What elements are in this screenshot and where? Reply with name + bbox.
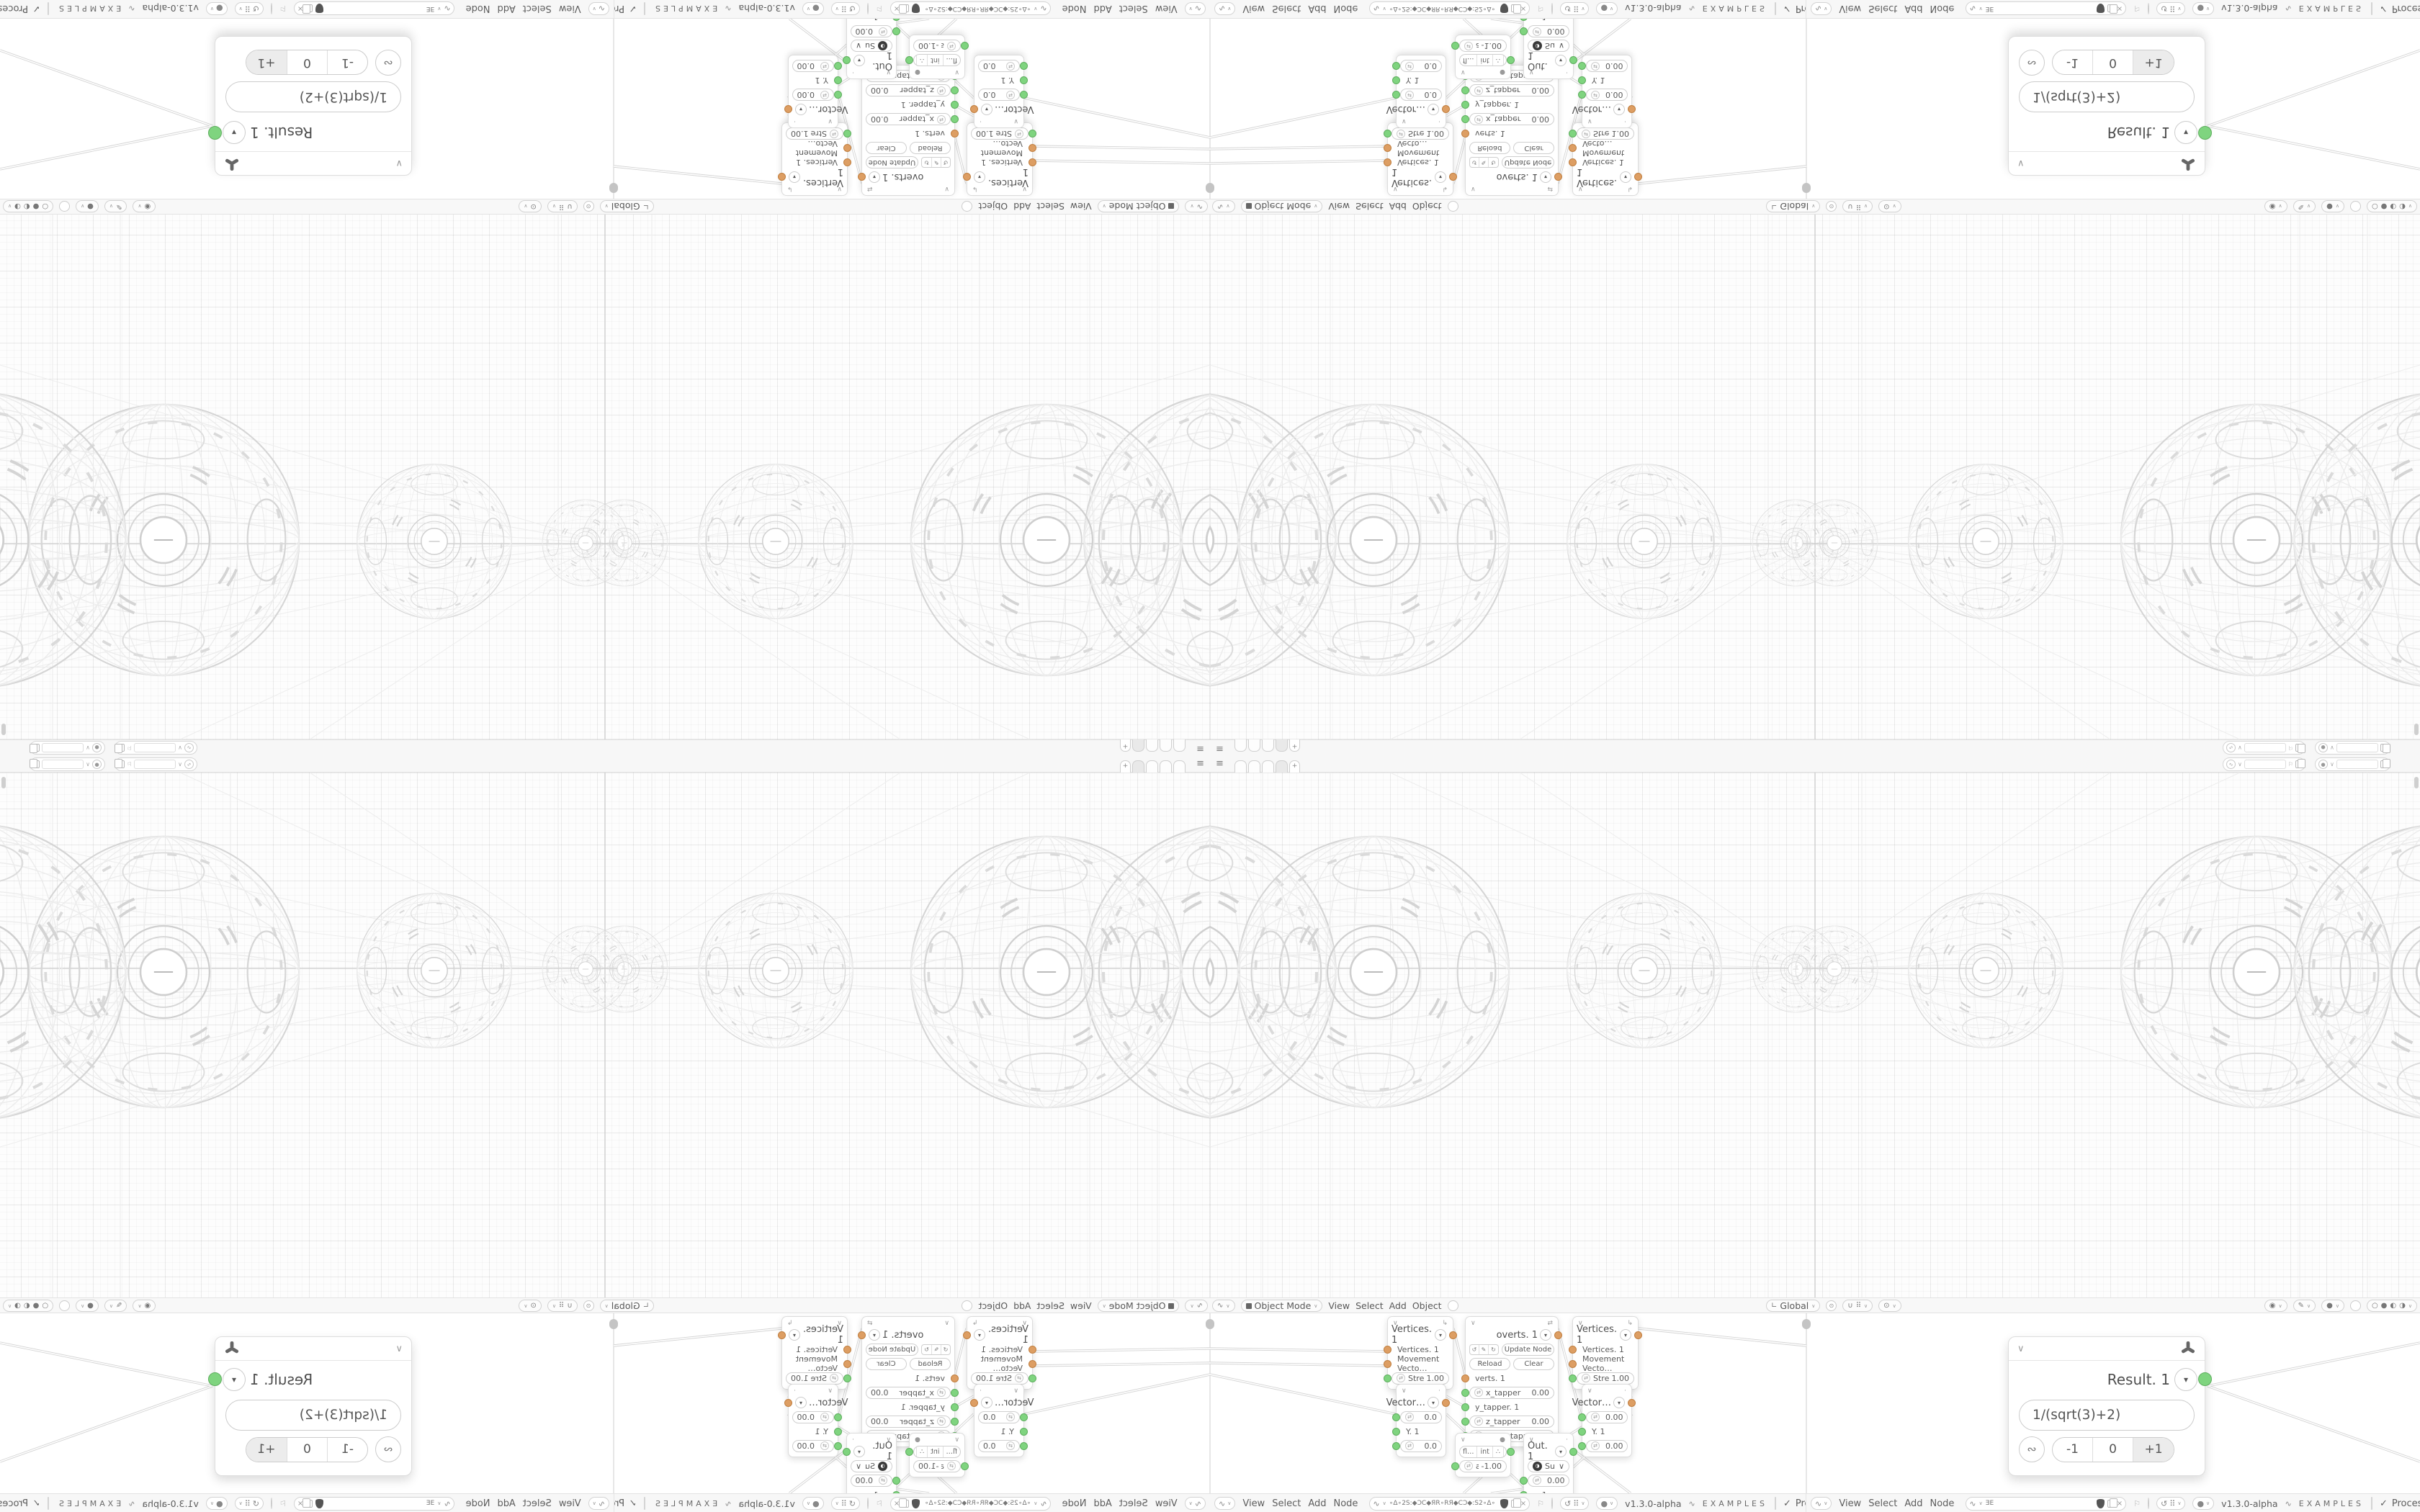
stepper-minus-button[interactable]: -1 <box>2053 51 2093 75</box>
tab-active[interactable] <box>1276 760 1288 773</box>
menu-add[interactable]: Add <box>1389 1300 1407 1311</box>
value-field[interactable]: ⇄a-1.00 <box>913 1460 961 1472</box>
node-socket[interactable] <box>834 1442 842 1450</box>
menu-object[interactable]: Object <box>978 1300 1008 1311</box>
value-field[interactable]: ⇄0.00 <box>792 60 834 73</box>
tab-active[interactable] <box>1276 739 1288 752</box>
tab[interactable] <box>1173 760 1186 773</box>
menu-add[interactable]: Add <box>1308 1498 1326 1509</box>
node-math[interactable]: ∨●fl…int∴▾⇄a-1.00 <box>909 1433 965 1477</box>
quick-field[interactable] <box>2336 760 2378 769</box>
menu-view[interactable]: View <box>1328 1300 1350 1311</box>
search-box[interactable]: ∿∨ ∘Δ∘2S:◆ƆC◆ЯR∘RЯ◆CƆ◆:S2∘Δ∘ × <box>890 1497 1051 1511</box>
node-socket[interactable] <box>843 1448 851 1456</box>
value-field[interactable]: ⇄0.0 <box>978 1440 1020 1452</box>
menu-add[interactable]: Add <box>1094 4 1112 14</box>
expression-field[interactable]: 1/(sqrt(3)+2) <box>225 81 401 112</box>
node-update-overts[interactable]: ∨⇄overts. 1▾↺✎↻Update NodeReloadClearver… <box>861 65 955 196</box>
examples-button[interactable]: EXAMPLES <box>1703 4 1767 14</box>
collapse-chevron-icon[interactable]: ∨ <box>954 69 959 76</box>
value-field[interactable]: ⇄0.00 <box>1586 60 1628 73</box>
copy-icon[interactable] <box>902 5 909 13</box>
reload-button[interactable]: Reload <box>1469 1358 1510 1370</box>
3d-viewport[interactable] <box>0 773 1210 1297</box>
node-socket[interactable] <box>1028 145 1036 153</box>
particles-icon[interactable]: ∴ <box>644 1498 645 1509</box>
node-socket[interactable] <box>970 106 978 114</box>
node-socket[interactable] <box>892 19 900 22</box>
node-result[interactable]: ∨ Result. 1 ▾ 1/(sqrt(3)+2) ∾ -1 0 <box>215 1336 412 1476</box>
wireframe-sphere[interactable] <box>1567 464 1722 619</box>
examples-button[interactable]: EXAMPLES <box>653 1499 717 1508</box>
collapse-chevron-icon[interactable]: ∨ <box>1587 1387 1592 1395</box>
editor-type-button[interactable]: ∿∨ <box>1214 2 1235 15</box>
node-socket[interactable] <box>963 1331 971 1339</box>
node-socket[interactable] <box>1569 57 1577 65</box>
node-math[interactable]: ∨●fl…int∴▾⇄a-1.00 <box>1455 1433 1511 1477</box>
node-math[interactable]: ∨●fl…int∴▾⇄a-1.00 <box>1455 35 1511 79</box>
value-field[interactable]: ⇄0.00 <box>1528 1475 1569 1487</box>
menu-object[interactable]: Object <box>1412 201 1442 212</box>
node-socket[interactable] <box>1578 63 1586 71</box>
quick-field[interactable] <box>134 760 176 769</box>
tab[interactable] <box>1146 760 1158 773</box>
node-socket[interactable] <box>858 174 866 181</box>
editor-type-button[interactable]: ∿∨ <box>588 2 609 15</box>
stepper-plus-button[interactable]: +1 <box>2133 51 2174 75</box>
node-socket[interactable] <box>843 145 851 153</box>
snap-toggle[interactable]: ∪⠿∨ <box>1842 1300 1873 1312</box>
node-socket[interactable] <box>1554 174 1562 181</box>
refresh-grid-button[interactable]: ↺⠿∨ <box>1560 2 1589 15</box>
tools-pair[interactable]: ∴>_ <box>2371 2 2372 15</box>
reload-button[interactable]: Reload <box>1469 143 1510 155</box>
value-field[interactable]: ⇄Stren1.00 <box>1391 1372 1449 1385</box>
search-box[interactable]: ∿∨ ∘Δ∘2S:◆ƆC◆ЯR∘RЯ◆CƆ◆:S2∘Δ∘ × <box>890 2 1051 16</box>
wireframe-shading-icon[interactable]: ○ <box>42 1302 48 1310</box>
refresh-grid-button[interactable]: ↺⠿∨ <box>831 1497 860 1510</box>
clear-button[interactable]: Clear <box>1513 143 1554 155</box>
search-input[interactable]: ∘Δ∘2S:◆ƆC◆ЯR∘RЯ◆CƆ◆:S2∘Δ∘ <box>1389 5 1497 12</box>
render-preview-button[interactable] <box>59 1300 70 1311</box>
overlays-dropdown[interactable]: ✎∨ <box>2293 200 2316 212</box>
node-socket[interactable] <box>951 87 959 95</box>
node-socket[interactable] <box>892 28 900 36</box>
quick-access-control[interactable]: ● ∨ <box>30 757 105 771</box>
copy-icon[interactable] <box>2295 744 2302 752</box>
copy-icon[interactable] <box>1511 1500 1518 1508</box>
shield-icon[interactable] <box>912 1499 920 1508</box>
menu-view[interactable]: View <box>559 1498 581 1509</box>
value-dropdown[interactable]: ▾ <box>789 1329 800 1341</box>
shield-icon[interactable] <box>1500 4 1508 14</box>
node-socket[interactable] <box>1569 1360 1577 1368</box>
orientation-dropdown[interactable]: ∟Global∨ <box>1766 1300 1820 1312</box>
menu-add[interactable]: Add <box>1013 201 1031 212</box>
solid-shading-icon[interactable]: ● <box>33 1302 40 1310</box>
node-socket[interactable] <box>1020 91 1028 99</box>
wireframe-sphere[interactable] <box>1791 500 1878 586</box>
menu-add[interactable]: Add <box>1094 1498 1112 1509</box>
value-field[interactable]: ⇄0.0 <box>1400 1440 1442 1452</box>
menu-add[interactable]: Add <box>498 1498 516 1509</box>
mini-buttons[interactable]: ↺✎↻ <box>921 158 951 168</box>
viewport-scroll-handle[interactable] <box>2414 777 2419 788</box>
tools-pair[interactable]: ∴>_ <box>48 2 49 15</box>
undo-icon[interactable]: ↺ <box>1470 1345 1479 1354</box>
search-box[interactable]: ∿∨ ƎE × <box>294 1497 454 1511</box>
value-field[interactable]: ⇄Stren1.00 <box>1391 128 1449 140</box>
value-dropdown[interactable]: ▾ <box>1540 1329 1551 1341</box>
dropdown-tri-icon[interactable]: ▾ <box>913 1446 916 1457</box>
pin-icon[interactable]: ⚐ <box>1537 1499 1544 1508</box>
node-socket[interactable] <box>1461 1389 1469 1397</box>
node-editor-area[interactable]: ∨↳Vertices. 1▾Vertices. 1Movement Vecto…… <box>1210 19 2420 199</box>
menu-node[interactable]: Node <box>466 4 490 14</box>
render-preview-button[interactable] <box>2350 1300 2361 1311</box>
shading-mode-switch[interactable]: ○●◐◑∨ <box>2367 200 2417 212</box>
node-socket[interactable] <box>1461 1403 1469 1411</box>
menu-node[interactable]: Node <box>1930 1498 1954 1509</box>
collapse-chevron-icon[interactable]: ∨ <box>1461 69 1466 76</box>
collapse-chevron-icon[interactable]: ∨ <box>1013 118 1018 125</box>
display-button[interactable]: ●∨ <box>2192 2 2214 15</box>
mode-dropdown[interactable]: Object Mode∨ <box>1098 1300 1180 1312</box>
output-socket[interactable] <box>208 1372 222 1386</box>
output-socket[interactable] <box>208 126 222 140</box>
value-dropdown[interactable]: ▾ <box>981 104 992 115</box>
tab[interactable] <box>1248 760 1260 773</box>
node-socket[interactable] <box>970 1399 978 1407</box>
pivot-button[interactable]: ⊙ <box>1826 1300 1837 1311</box>
copy-icon[interactable] <box>118 760 125 768</box>
wireframe-sphere[interactable] <box>542 926 629 1012</box>
value-field[interactable]: ⇄z_tapper0.00 <box>866 1416 951 1428</box>
display-button[interactable]: ●∨ <box>206 2 228 15</box>
menu-object[interactable]: Object <box>978 201 1008 212</box>
gizmo-dropdown[interactable]: ◉∨ <box>2264 200 2287 212</box>
redo-icon[interactable]: ↻ <box>922 1345 931 1354</box>
value-dropdown[interactable]: ▾ <box>869 1329 880 1341</box>
node-socket[interactable] <box>1569 1374 1577 1382</box>
value-field[interactable]: ⇄0.00 <box>792 89 834 102</box>
copy-icon[interactable] <box>306 1500 313 1508</box>
particles-icon[interactable]: ∴ <box>48 1498 48 1509</box>
empty-circle-button[interactable] <box>1551 1498 1553 1509</box>
editor-type-button[interactable]: ∿∨ <box>588 1497 609 1510</box>
pin-icon[interactable]: ⚐ <box>127 761 132 768</box>
material-shading-icon[interactable]: ◐ <box>24 1302 30 1310</box>
node-socket[interactable] <box>834 1413 842 1421</box>
xray-toggle[interactable]: ●∨ <box>76 200 99 212</box>
menu-add[interactable]: Add <box>1904 4 1922 14</box>
operation-segment[interactable]: fl…int∴▾ <box>1459 53 1507 68</box>
display-button[interactable]: ●∨ <box>206 1497 228 1510</box>
pin-icon[interactable]: ⚐ <box>2133 4 2141 14</box>
orientation-dropdown[interactable]: ∟Global∨ <box>1766 200 1820 212</box>
operation-segment[interactable]: fl…int∴▾ <box>913 1444 961 1459</box>
value-dropdown[interactable]: ▾ <box>223 1368 246 1391</box>
value-field[interactable]: ⇄0.0 <box>1400 60 1442 73</box>
mini-buttons[interactable]: ↺✎↻ <box>921 1344 951 1355</box>
node-result[interactable]: ∨ Result. 1 ▾ 1/(sqrt(3)+2) ∾ -1 0 <box>215 36 412 176</box>
tools-pair[interactable]: ∴>_ <box>48 1497 49 1510</box>
pivot-button[interactable]: ⊙ <box>583 1300 594 1311</box>
collapse-chevron-icon[interactable]: ∨ <box>1461 1436 1466 1444</box>
node-editor-area[interactable]: ∨↳Vertices. 1▾Vertices. 1Movement Vecto…… <box>0 19 1210 199</box>
node-socket[interactable] <box>1578 1413 1586 1421</box>
operation-segment[interactable]: fl…int∴▾ <box>913 53 961 68</box>
wireframe-sphere[interactable] <box>357 894 512 1048</box>
operation-segment[interactable]: fl…int∴▾ <box>1459 1444 1507 1459</box>
value-field[interactable]: ⇄0.0 <box>978 89 1020 102</box>
node-socket[interactable] <box>1461 116 1469 124</box>
quick-access-control[interactable]: ∿ ∨ ⚐ <box>115 757 197 771</box>
menu-view[interactable]: View <box>1839 1498 1861 1509</box>
node-socket[interactable] <box>1392 91 1400 99</box>
wireframe-sphere[interactable] <box>1567 894 1722 1048</box>
empty-circle-button[interactable] <box>271 3 272 14</box>
node-socket[interactable] <box>1392 63 1400 71</box>
update-node-button[interactable]: Update Node <box>866 1344 918 1356</box>
shading-mode-switch[interactable]: ○●◐◑∨ <box>3 1300 53 1312</box>
value-dropdown[interactable]: ▾ <box>1555 55 1567 66</box>
node-result[interactable]: ∨ Result. 1 ▾ 1/(sqrt(3)+2) ∾ -1 0 <box>2008 36 2205 176</box>
menu-select[interactable]: Select <box>1036 201 1065 212</box>
tab[interactable] <box>1262 739 1274 752</box>
copy-icon[interactable] <box>902 1500 909 1508</box>
menu-select[interactable]: Select <box>1868 1498 1897 1509</box>
wireframe-sphere[interactable] <box>699 464 853 619</box>
node-socket[interactable] <box>1569 1346 1577 1354</box>
copy-icon[interactable] <box>2295 760 2302 768</box>
clear-icon[interactable]: × <box>2117 1500 2123 1508</box>
node-socket[interactable] <box>1461 1374 1469 1382</box>
menu-select[interactable]: Select <box>1119 4 1148 14</box>
proportional-edit-toggle[interactable]: ⊙∨ <box>1878 200 1901 212</box>
value-dropdown[interactable]: ▾ <box>2174 121 2197 144</box>
tab[interactable] <box>1160 739 1172 752</box>
quick-access-control[interactable]: ∿ ∨ ⚐ <box>115 741 197 755</box>
menu-icon[interactable]: ≡ <box>1196 742 1204 754</box>
node-vertices-a[interactable]: ∨↳Vertices. 1▾Vertices. 1Movement Vecto…… <box>1387 1316 1453 1390</box>
node-socket[interactable] <box>1384 1360 1391 1368</box>
search-input[interactable]: ∘Δ∘2S:◆ƆC◆ЯR∘RЯ◆CƆ◆:S2∘Δ∘ <box>1389 1500 1497 1507</box>
node-socket[interactable] <box>858 1331 866 1339</box>
node-socket[interactable] <box>1569 145 1577 153</box>
copy-icon[interactable] <box>2107 5 2114 13</box>
update-node-button[interactable]: Update Node <box>1502 1344 1554 1356</box>
node-socket[interactable] <box>784 106 792 114</box>
search-box[interactable]: ∿∨ ∘Δ∘2S:◆ƆC◆ЯR∘RЯ◆CƆ◆:S2∘Δ∘ × <box>1369 2 1530 16</box>
gizmo-dropdown[interactable]: ◉∨ <box>133 1300 156 1312</box>
stepper-minus-button[interactable]: -1 <box>2053 1438 2093 1462</box>
node-socket[interactable] <box>1020 1413 1028 1421</box>
search-input[interactable]: ƎE <box>1986 5 2094 12</box>
quick-field[interactable] <box>2336 743 2378 752</box>
pin-icon[interactable]: ⚐ <box>279 1499 287 1508</box>
segment-box[interactable]: fl…int∴▾ <box>913 1446 961 1458</box>
value-dropdown[interactable]: ▾ <box>981 1397 992 1408</box>
node-socket[interactable] <box>1578 1442 1586 1450</box>
wireframe-shading-icon[interactable]: ○ <box>42 202 48 210</box>
menu-select[interactable]: Select <box>1355 1300 1384 1311</box>
menu-object[interactable]: Object <box>1412 1300 1442 1311</box>
clear-button[interactable]: Clear <box>1513 1358 1554 1370</box>
quick-access-control[interactable]: ∿ ∨ ⚐ <box>2223 741 2305 755</box>
node-socket[interactable] <box>1384 159 1391 167</box>
menu-add[interactable]: Add <box>1308 4 1326 14</box>
node-socket[interactable] <box>892 1491 900 1494</box>
node-update-overts[interactable]: ∨⇄overts. 1▾↺✎↻Update NodeReloadClearver… <box>861 1316 955 1447</box>
refresh-grid-button[interactable]: ↺⠿∨ <box>2156 1497 2185 1510</box>
menu-view[interactable]: View <box>1070 1300 1092 1311</box>
node-socket[interactable] <box>892 1477 900 1485</box>
reload-button[interactable]: Reload <box>910 1358 951 1370</box>
tab[interactable] <box>1234 760 1247 773</box>
output-socket[interactable] <box>2198 126 2212 140</box>
wireframe-sphere[interactable] <box>1909 894 2063 1048</box>
node-socket[interactable] <box>1461 130 1469 138</box>
node-math[interactable]: ∨●fl…int∴▾⇄a-1.00 <box>909 35 965 79</box>
xray-toggle[interactable]: ●∨ <box>2321 1300 2344 1312</box>
quick-field[interactable] <box>2244 760 2286 769</box>
empty-circle-button[interactable] <box>1551 3 1553 14</box>
solid-shading-icon[interactable]: ● <box>33 202 40 210</box>
value-field[interactable]: ⇄0.0 <box>1400 1411 1442 1423</box>
node-vector-a[interactable]: ∨·Vector…▾⇄0.0Y. 1⇄0.0 <box>1396 55 1446 128</box>
node-socket[interactable] <box>1507 1448 1515 1456</box>
segment-option[interactable]: ∴ <box>1493 55 1504 66</box>
menu-view[interactable]: View <box>1070 201 1092 212</box>
segment-option[interactable]: fl… <box>943 1446 960 1457</box>
expression-field[interactable]: 1/(sqrt(3)+2) <box>2019 1400 2195 1431</box>
empty-circle-button[interactable] <box>2148 1498 2149 1509</box>
pin-icon[interactable]: ⚐ <box>1537 4 1544 14</box>
display-button[interactable]: ●∨ <box>1596 2 1618 15</box>
editor-type-button[interactable]: ∿∨ <box>1212 1300 1235 1312</box>
stepper-minus-button[interactable]: -1 <box>327 51 367 75</box>
update-node-button[interactable]: Update Node <box>866 157 918 169</box>
shield-icon[interactable] <box>1500 1499 1508 1508</box>
operation-dropdown[interactable]: ◑Sub∨ <box>1528 40 1569 53</box>
value-field[interactable]: ⇄0.00 <box>1528 26 1569 38</box>
value-field[interactable]: ⇄0.00 <box>1586 1440 1628 1452</box>
tab[interactable] <box>1248 739 1260 752</box>
particles-icon[interactable]: ∴ <box>1775 1498 1776 1509</box>
menu-node[interactable]: Node <box>1930 4 1954 14</box>
node-vertices-a[interactable]: ∨↳Vertices. 1▾Vertices. 1Movement Vecto…… <box>967 122 1033 196</box>
shading-mode-switch[interactable]: ○●◐◑∨ <box>2367 1300 2417 1312</box>
rendered-shading-icon[interactable]: ◑ <box>2399 202 2406 210</box>
mode-dropdown[interactable]: Object Mode∨ <box>1241 200 1323 212</box>
wireframe-sphere[interactable] <box>911 405 1182 675</box>
xray-toggle[interactable]: ●∨ <box>76 1300 99 1312</box>
operation-dropdown[interactable]: ◑Sub∨ <box>1528 1460 1569 1472</box>
redo-icon[interactable]: ↻ <box>1489 1345 1498 1354</box>
node-socket[interactable] <box>1451 1462 1459 1470</box>
node-socket[interactable] <box>843 1346 851 1354</box>
quick-field[interactable] <box>42 760 84 769</box>
node-socket[interactable] <box>1442 1399 1450 1407</box>
stepper-plus-button[interactable]: +1 <box>2133 1438 2174 1462</box>
value-field[interactable]: ⇄x_tapper0.00 <box>1469 114 1554 126</box>
node-socket[interactable] <box>1384 1374 1391 1382</box>
node-socket[interactable] <box>1392 1428 1400 1436</box>
clear-icon[interactable]: × <box>2117 5 2123 13</box>
value-dropdown[interactable]: ▾ <box>789 171 800 183</box>
copy-icon[interactable] <box>306 5 313 13</box>
collapse-chevron-icon[interactable]: ∨ <box>1471 186 1476 193</box>
menu-add[interactable]: Add <box>1013 1300 1031 1311</box>
editor-type-button[interactable]: ∿∨ <box>1185 1497 1206 1510</box>
node-update-overts[interactable]: ∨⇄overts. 1▾↺✎↻Update NodeReloadClearver… <box>1465 1316 1559 1447</box>
overlays-dropdown[interactable]: ✎∨ <box>104 200 127 212</box>
search-input[interactable]: ƎE <box>1986 1500 2094 1507</box>
node-socket[interactable] <box>1028 1346 1036 1354</box>
snap-toggle[interactable]: ∪⠿∨ <box>547 200 578 212</box>
value-dropdown[interactable]: ▾ <box>2174 1368 2197 1391</box>
expression-field[interactable]: 1/(sqrt(3)+2) <box>2019 81 2195 112</box>
particles-icon[interactable]: ∴ <box>48 3 48 14</box>
examples-button[interactable]: EXAMPLES <box>2299 4 2364 14</box>
node-socket[interactable] <box>1520 19 1528 22</box>
viewport-scroll-handle[interactable] <box>2414 724 2419 735</box>
mode-dropdown[interactable]: Object Mode∨ <box>1241 1300 1323 1312</box>
new-tab-button[interactable]: + <box>1289 739 1300 752</box>
value-dropdown[interactable]: ▾ <box>1620 171 1631 183</box>
value-dropdown[interactable]: ▾ <box>795 1397 807 1408</box>
node-socket[interactable] <box>1384 145 1391 153</box>
display-button[interactable]: ●∨ <box>1596 1497 1618 1510</box>
value-field[interactable]: ⇄Stren1.00 <box>971 1372 1028 1385</box>
editor-type-button[interactable]: ∿∨ <box>1811 2 1832 15</box>
value-field[interactable]: ⇄Stren1.00 <box>786 128 843 140</box>
stepper-minus-button[interactable]: -1 <box>327 1438 367 1462</box>
value-field[interactable]: ⇄Stren1.00 <box>971 128 1028 140</box>
stepper-zero-button[interactable]: 0 <box>287 1438 327 1462</box>
copy-icon[interactable] <box>2380 744 2387 752</box>
node-socket[interactable] <box>1028 1360 1036 1368</box>
segment-option[interactable]: int <box>927 1446 942 1457</box>
mode-dropdown[interactable]: Object Mode∨ <box>1098 200 1180 212</box>
search-box[interactable]: ∿∨ ƎE × <box>294 2 454 16</box>
node-vertices-b[interactable]: ∨↳Vertices. 1▾Vertices. 1Movement Vecto…… <box>1572 1316 1639 1390</box>
node-socket[interactable] <box>1578 77 1586 85</box>
node-socket[interactable] <box>1020 63 1028 71</box>
refresh-grid-button[interactable]: ↺⠿∨ <box>2156 2 2185 15</box>
pin-icon[interactable]: ⚐ <box>279 4 287 14</box>
collapse-chevron-icon[interactable]: ∨ <box>395 1344 403 1354</box>
segment-option[interactable]: int <box>1477 55 1492 66</box>
copy-icon[interactable] <box>118 744 125 752</box>
value-field[interactable]: ⇄0.0 <box>978 60 1020 73</box>
node-socket[interactable] <box>1628 106 1636 114</box>
tab[interactable] <box>1173 739 1186 752</box>
undo-icon[interactable]: ↺ <box>941 1345 950 1354</box>
node-socket[interactable] <box>1020 1442 1028 1450</box>
value-dropdown[interactable]: ▾ <box>1613 1397 1625 1408</box>
editor-type-button[interactable]: ∿∨ <box>1214 1497 1235 1510</box>
menu-node[interactable]: Node <box>1062 4 1087 14</box>
update-node-button[interactable]: Update Node <box>1502 157 1554 169</box>
material-shading-icon[interactable]: ◐ <box>2390 202 2396 210</box>
wireframe-sphere[interactable] <box>2121 837 2392 1107</box>
node-socket[interactable] <box>1634 1331 1642 1339</box>
clear-button[interactable]: Clear <box>866 1358 907 1370</box>
collapse-chevron-icon[interactable]: ∨ <box>954 1436 959 1444</box>
orientation-dropdown[interactable]: ∟Global∨ <box>600 1300 654 1312</box>
